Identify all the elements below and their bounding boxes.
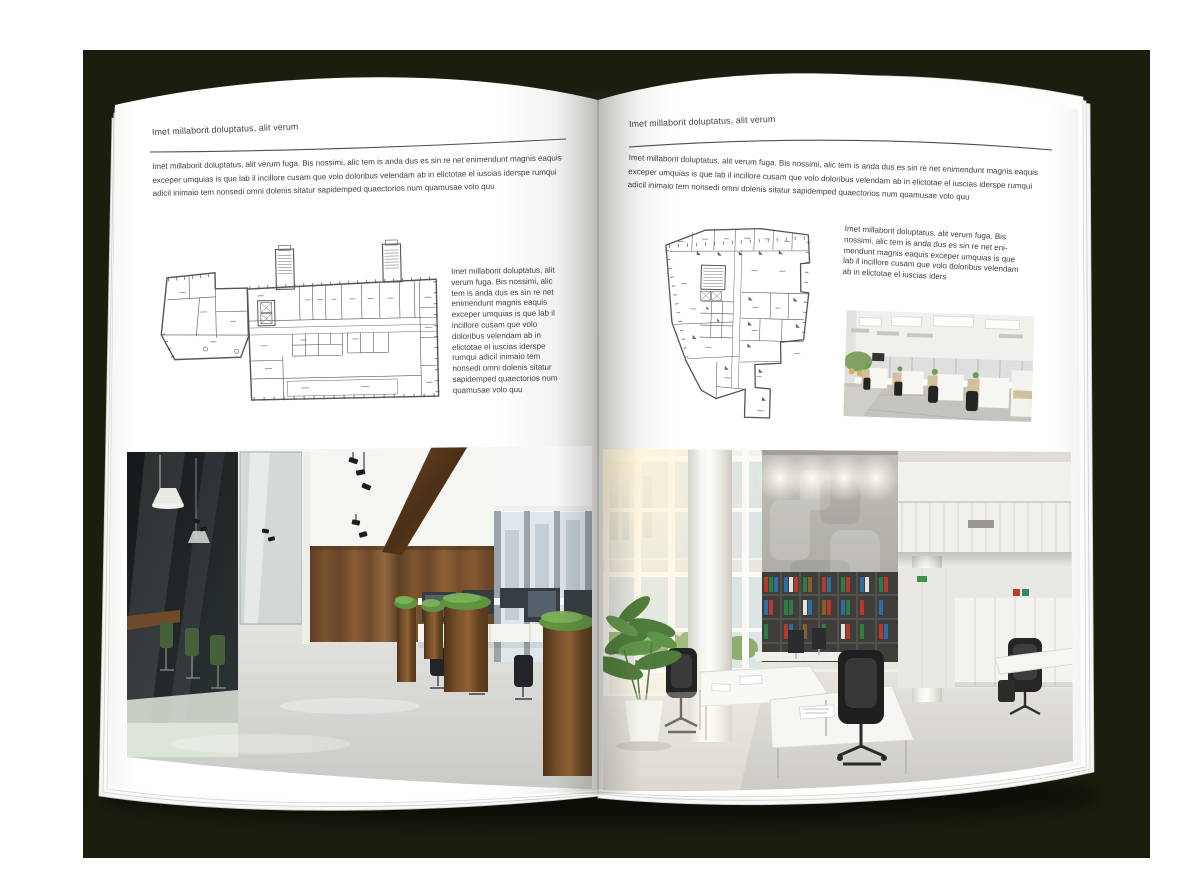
right-page-caption: Imet millaborit doluptatus, alit verum f…	[842, 224, 1025, 287]
safety-sign-green	[1022, 589, 1029, 596]
office-photo-right	[575, 430, 1074, 802]
safety-sign-red	[1013, 589, 1020, 596]
office-photo-left	[118, 446, 595, 800]
book-mockup-canvas: Imet millaborit doluptatus, alit verum I…	[0, 0, 1200, 891]
left-page-caption: Imet millaborit doluptatus, alit verum f…	[451, 265, 565, 396]
office-photo-small	[842, 310, 1034, 423]
